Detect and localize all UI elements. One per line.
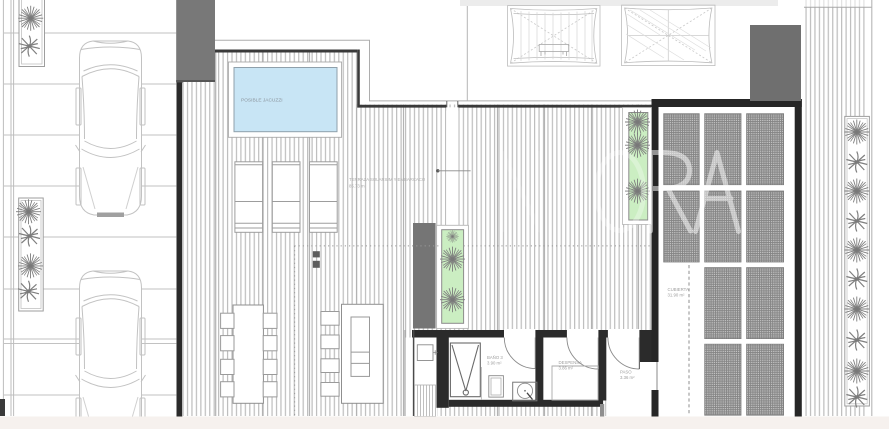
svg-text:PASO: PASO [620, 370, 632, 375]
svg-text:3.36 m²: 3.36 m² [620, 375, 635, 380]
svg-text:BAÑO 3: BAÑO 3 [487, 355, 503, 360]
svg-text:31.90 m²: 31.90 m² [668, 293, 686, 298]
svg-text:85.73 m: 85.73 m [349, 184, 365, 189]
svg-text:3.86 m²: 3.86 m² [559, 366, 574, 371]
svg-text:3.90 m²: 3.90 m² [487, 361, 502, 366]
svg-text:POSIBLE JACUZZI: POSIBLE JACUZZI [241, 98, 283, 104]
svg-text:CUBIERTA: CUBIERTA [668, 287, 689, 292]
svg-text:DESPENSA: DESPENSA [559, 360, 583, 365]
svg-text:TERRAZA SOLARIUM Y EMBARCACO: TERRAZA SOLARIUM Y EMBARCACO [349, 177, 426, 182]
